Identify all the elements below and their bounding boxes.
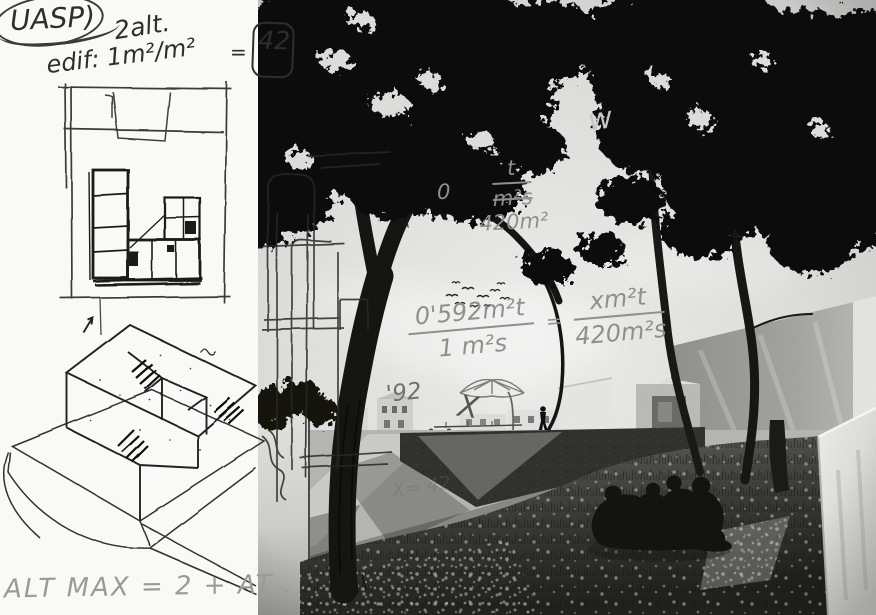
photo-grain xyxy=(258,0,876,615)
boxed-result: 42 xyxy=(251,21,295,78)
hatch-opening xyxy=(118,360,244,462)
boxed-result-value: 42 xyxy=(258,25,291,55)
building-plan xyxy=(89,170,202,285)
scene xyxy=(0,0,876,615)
artboard: UASP) 2alt. edif: 1m²/m² = 42 0 t m²s 42… xyxy=(0,0,876,615)
plan-sketch xyxy=(58,82,232,335)
render-photo xyxy=(230,0,876,615)
site-notch xyxy=(105,92,170,141)
site-boundary xyxy=(58,82,232,303)
axono-sketch xyxy=(4,318,264,594)
sketch-dots xyxy=(84,354,231,451)
connector-line xyxy=(100,297,101,335)
